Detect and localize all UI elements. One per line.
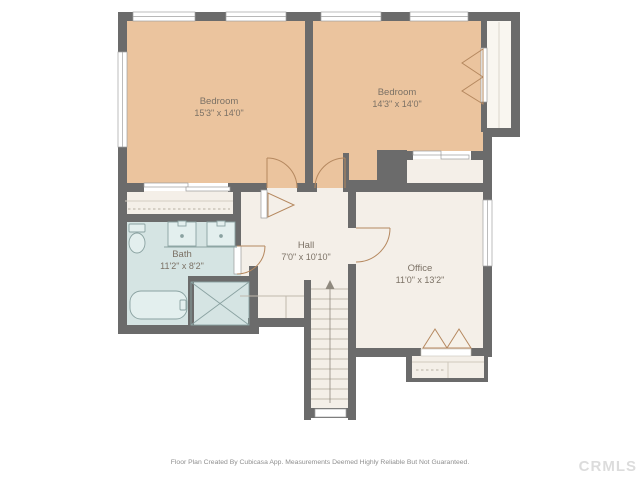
disclaimer-text: Floor Plan Created By Cubicasa App. Meas… (171, 459, 470, 466)
bedroom2-label: Bedroom (378, 87, 417, 98)
wall-stair-left (304, 280, 311, 420)
wall-bed1-bottom-a (118, 183, 144, 192)
bedroom2-floor (313, 17, 485, 155)
wall-closet-right (511, 12, 520, 137)
toilet-bowl-icon (129, 233, 145, 253)
hall-dimensions: 7'0" x 10'10" (281, 252, 330, 262)
wardrobe-slider-1 (144, 183, 188, 187)
floor-plan-drawing: Bedroom 15'3" x 14'0" Bedroom 14'3" x 14… (0, 0, 640, 480)
sink2-drain-icon (220, 235, 223, 238)
alcove-slider-2 (441, 155, 469, 159)
wall-hall-office-upper (348, 185, 356, 228)
bedroom2-dimensions: 14'3" x 14'0" (372, 99, 421, 109)
wall-closet-left-a (481, 20, 487, 48)
bath-door-slab (234, 246, 241, 274)
bath-dimensions: 11'2" x 8'2" (160, 261, 204, 271)
wardrobe-floor (123, 188, 237, 218)
crmls-watermark: CRMLS (579, 458, 637, 475)
office-label: Office (408, 263, 433, 274)
wall-bath-bottom (118, 325, 259, 334)
bedroom1-label: Bedroom (200, 96, 239, 107)
wall-closet-left-b (481, 102, 487, 132)
hall-label: Hall (298, 240, 314, 251)
sink1-drain-icon (181, 235, 184, 238)
wardrobe-slider-2 (186, 187, 230, 191)
shower-floor (191, 278, 249, 327)
sink2-faucet-icon (217, 221, 225, 226)
stair-bottom-door (315, 409, 346, 417)
wall-office-top (343, 183, 492, 192)
hall-door-slab (261, 190, 267, 218)
wall-bed1-bottom-c (297, 183, 313, 192)
toilet-tank-icon (129, 224, 145, 232)
wall-closet-bottom (485, 128, 520, 137)
floor-plan-page: Bedroom 15'3" x 14'0" Bedroom 14'3" x 14… (0, 0, 640, 480)
bathtub-icon (130, 291, 187, 319)
office-dimensions: 11'0" x 13'2" (396, 275, 445, 285)
bedroom1-dimensions: 15'3" x 14'0" (194, 108, 243, 118)
sink1-faucet-icon (178, 221, 186, 226)
bathtub-faucet-icon (180, 300, 186, 310)
wall-hall-office-lower (348, 264, 356, 420)
closet-door-slab (481, 48, 487, 102)
office-closet-opening (421, 349, 471, 356)
bath-label: Bath (172, 249, 192, 260)
alcove-slider-1 (413, 151, 441, 155)
wall-bedroom-divider (305, 20, 313, 188)
wall-bed2-bottom-r1 (377, 151, 413, 160)
wall-shower-top (188, 276, 249, 282)
wall-bed2-bottom-r2 (471, 151, 485, 160)
